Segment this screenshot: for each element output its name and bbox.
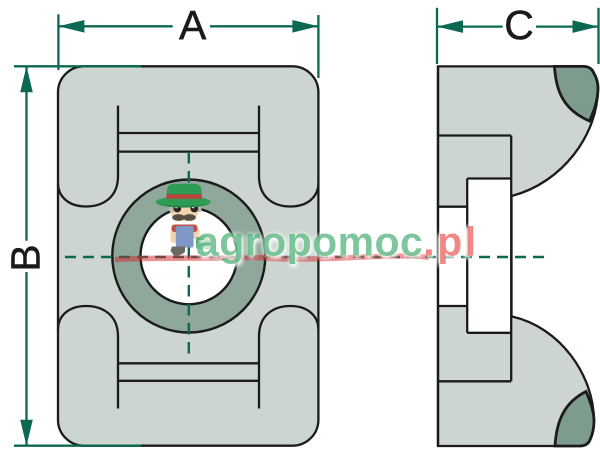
svg-text:B: B — [2, 244, 48, 271]
svg-text:agropomoc.pl: agropomoc.pl — [196, 218, 479, 264]
svg-text:C: C — [504, 2, 534, 48]
svg-text:A: A — [179, 2, 207, 48]
